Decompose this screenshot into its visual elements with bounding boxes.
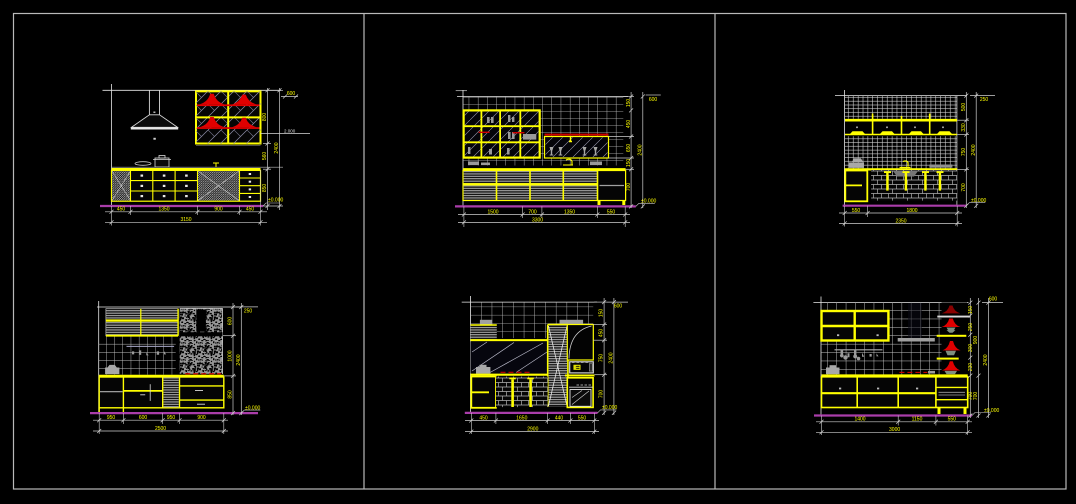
svg-text:950: 950 (107, 415, 116, 421)
svg-text:850: 850 (228, 390, 234, 399)
svg-text:700: 700 (599, 390, 605, 399)
svg-text:250: 250 (244, 309, 253, 315)
svg-text:±0.000: ±0.000 (602, 405, 617, 411)
svg-text:600: 600 (614, 304, 623, 310)
svg-text:2400: 2400 (274, 142, 280, 153)
svg-text:230: 230 (968, 363, 974, 372)
svg-text:150: 150 (626, 159, 632, 168)
svg-text:700: 700 (528, 209, 537, 215)
svg-text:600: 600 (649, 97, 658, 103)
svg-text:250: 250 (980, 97, 989, 103)
svg-text:±0.000: ±0.000 (268, 198, 283, 204)
svg-text:2400: 2400 (983, 354, 989, 365)
svg-text:1800: 1800 (906, 208, 917, 214)
svg-text:1000: 1000 (228, 350, 234, 361)
svg-text:600: 600 (139, 415, 148, 421)
svg-text:850: 850 (262, 184, 268, 193)
svg-text:2400: 2400 (971, 144, 977, 155)
svg-text:450: 450 (599, 329, 605, 338)
svg-text:2350: 2350 (895, 218, 906, 224)
svg-text:800: 800 (262, 113, 268, 122)
svg-text:750: 750 (599, 354, 605, 363)
svg-text:2400: 2400 (609, 352, 615, 363)
svg-text:560: 560 (262, 152, 268, 161)
svg-text:440: 440 (555, 415, 564, 421)
svg-text:900: 900 (197, 415, 206, 421)
svg-text:700: 700 (626, 183, 632, 192)
svg-text:750: 750 (961, 148, 967, 157)
svg-text:150: 150 (599, 309, 605, 318)
svg-text:900: 900 (973, 336, 979, 345)
svg-text:1350: 1350 (158, 207, 169, 213)
svg-text:550: 550 (852, 208, 861, 214)
svg-text:150: 150 (968, 306, 974, 315)
svg-text:150: 150 (626, 99, 632, 108)
svg-text:2500: 2500 (155, 426, 166, 432)
svg-text:±0.000: ±0.000 (971, 198, 986, 204)
svg-text:330: 330 (961, 123, 967, 132)
svg-text:1650: 1650 (516, 415, 527, 421)
svg-text:2400: 2400 (638, 144, 644, 155)
svg-text:2900: 2900 (527, 427, 538, 433)
svg-text:700: 700 (973, 392, 979, 401)
svg-text:450: 450 (479, 415, 488, 421)
svg-text:1150: 1150 (912, 417, 923, 423)
svg-text:250: 250 (968, 323, 974, 332)
svg-text:±0.000: ±0.000 (984, 408, 999, 414)
svg-text:450: 450 (246, 207, 255, 213)
svg-text:650: 650 (626, 144, 632, 153)
svg-text:550: 550 (607, 209, 616, 215)
svg-text:450: 450 (117, 207, 126, 213)
svg-text:550: 550 (948, 417, 957, 423)
svg-text:900: 900 (214, 207, 223, 213)
svg-text:700: 700 (961, 183, 967, 192)
svg-text:3000: 3000 (889, 427, 900, 433)
svg-text:450: 450 (626, 120, 632, 129)
svg-text:950: 950 (167, 415, 176, 421)
svg-text:1350: 1350 (564, 209, 575, 215)
svg-text:±0.000: ±0.000 (245, 405, 260, 411)
svg-text:1400: 1400 (854, 417, 865, 423)
svg-text:1500: 1500 (487, 209, 498, 215)
svg-text:2.000: 2.000 (284, 129, 296, 134)
svg-text:550: 550 (578, 415, 587, 421)
svg-text:600: 600 (228, 317, 234, 326)
svg-text:±0.000: ±0.000 (641, 198, 656, 204)
svg-text:600: 600 (989, 297, 998, 303)
svg-text:2400: 2400 (236, 354, 242, 365)
svg-text:600: 600 (287, 91, 296, 97)
svg-text:500: 500 (961, 103, 967, 112)
svg-text:3150: 3150 (180, 217, 191, 223)
svg-text:3300: 3300 (532, 217, 543, 223)
